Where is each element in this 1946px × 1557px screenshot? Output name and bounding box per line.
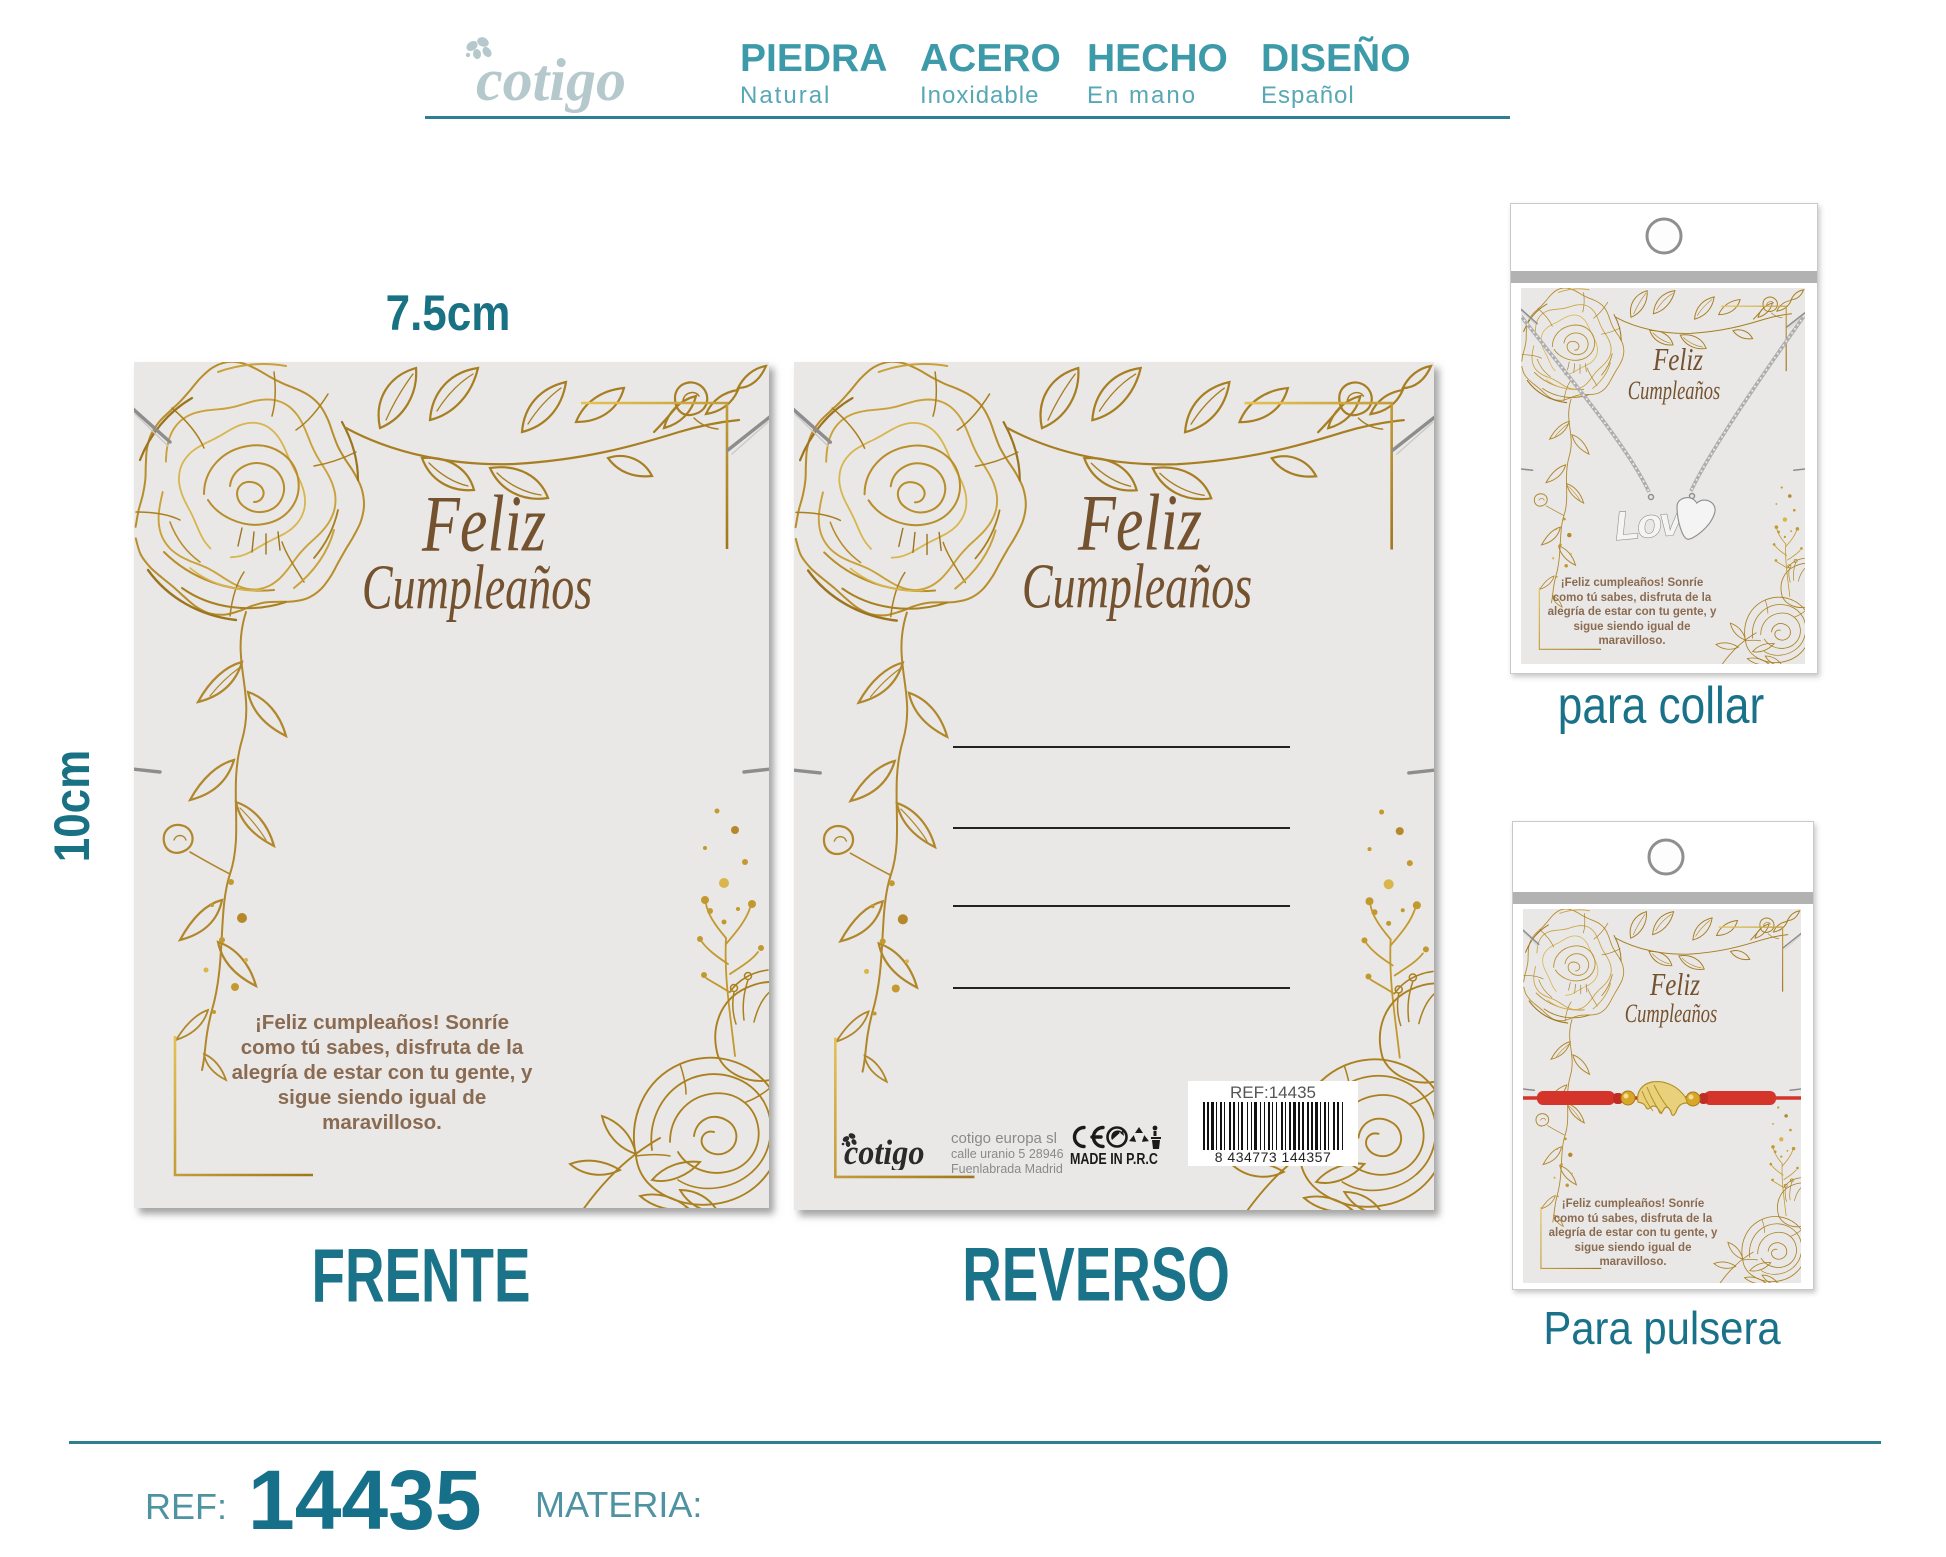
svg-text:cotigo: cotigo: [844, 1134, 924, 1170]
svg-text:cotigo: cotigo: [476, 47, 626, 113]
